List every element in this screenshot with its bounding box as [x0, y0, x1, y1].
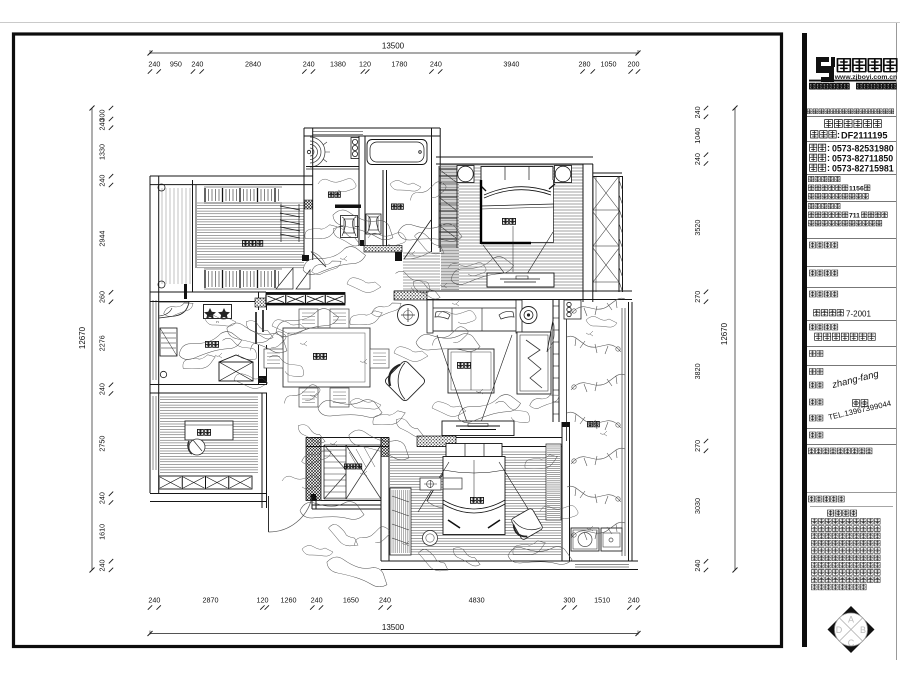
svg-text:A: A [848, 615, 854, 625]
svg-text:240: 240 [148, 596, 160, 605]
svg-text:13500: 13500 [382, 623, 405, 632]
svg-text:3940: 3940 [503, 60, 519, 69]
svg-text:1650: 1650 [343, 596, 359, 605]
svg-text:240: 240 [191, 60, 203, 69]
svg-text:240: 240 [98, 383, 107, 395]
svg-text:240: 240 [98, 175, 107, 187]
svg-text:1156: 1156 [849, 186, 864, 193]
svg-text:1330: 1330 [98, 144, 107, 160]
svg-text:711: 711 [849, 213, 860, 220]
svg-text:7-2001: 7-2001 [846, 310, 871, 319]
svg-text:13500: 13500 [382, 42, 405, 51]
svg-text:3030: 3030 [693, 498, 702, 514]
svg-text:2840: 2840 [245, 60, 261, 69]
svg-text::: : [827, 153, 830, 163]
svg-text:3820: 3820 [693, 363, 702, 379]
svg-text:0573-82715981: 0573-82715981 [832, 164, 894, 174]
svg-text:1380: 1380 [330, 60, 346, 69]
svg-text:1510: 1510 [594, 596, 610, 605]
svg-text:120: 120 [257, 596, 269, 605]
svg-text:240: 240 [311, 596, 323, 605]
svg-text:0573-82711850: 0573-82711850 [832, 154, 893, 164]
svg-text:2276: 2276 [98, 335, 107, 351]
svg-text:2750: 2750 [98, 436, 107, 452]
svg-text:12670: 12670 [720, 322, 729, 345]
svg-text:270: 270 [693, 291, 702, 303]
svg-text:240: 240 [148, 60, 160, 69]
svg-text:n: n [216, 319, 218, 324]
svg-text:1260: 1260 [281, 596, 297, 605]
svg-text:4830: 4830 [469, 596, 485, 605]
svg-text:2870: 2870 [203, 596, 219, 605]
svg-text:D: D [836, 625, 843, 635]
svg-text:B: B [860, 625, 866, 635]
svg-text::: : [837, 130, 840, 140]
svg-text:260: 260 [98, 291, 107, 303]
svg-text:240: 240 [628, 596, 640, 605]
svg-text:1050: 1050 [601, 60, 617, 69]
svg-text:240: 240 [693, 106, 702, 118]
svg-text:1610: 1610 [98, 524, 107, 540]
svg-text:280: 280 [579, 60, 591, 69]
svg-text:200: 200 [628, 60, 640, 69]
svg-text:240: 240 [430, 60, 442, 69]
svg-text:270: 270 [693, 440, 702, 452]
svg-text:240: 240 [693, 153, 702, 165]
svg-text:950: 950 [170, 60, 182, 69]
svg-text:1040: 1040 [693, 128, 702, 144]
svg-text:C: C [848, 638, 855, 648]
svg-text:240: 240 [379, 596, 391, 605]
svg-text:120: 120 [359, 60, 371, 69]
svg-text:12670: 12670 [78, 326, 87, 349]
svg-text::: : [827, 143, 830, 153]
svg-text:240: 240 [303, 60, 315, 69]
svg-text:3520: 3520 [693, 220, 702, 236]
svg-text:240: 240 [98, 560, 107, 572]
svg-text:0573-82531980: 0573-82531980 [832, 144, 894, 154]
svg-text:240: 240 [98, 492, 107, 504]
svg-text:240: 240 [693, 560, 702, 572]
svg-text:DF2111195: DF2111195 [841, 131, 888, 141]
svg-text:2944: 2944 [98, 231, 107, 247]
svg-text::: : [827, 163, 830, 173]
svg-text:1780: 1780 [391, 60, 407, 69]
svg-text:300: 300 [563, 596, 575, 605]
svg-text:240: 240 [98, 119, 107, 131]
